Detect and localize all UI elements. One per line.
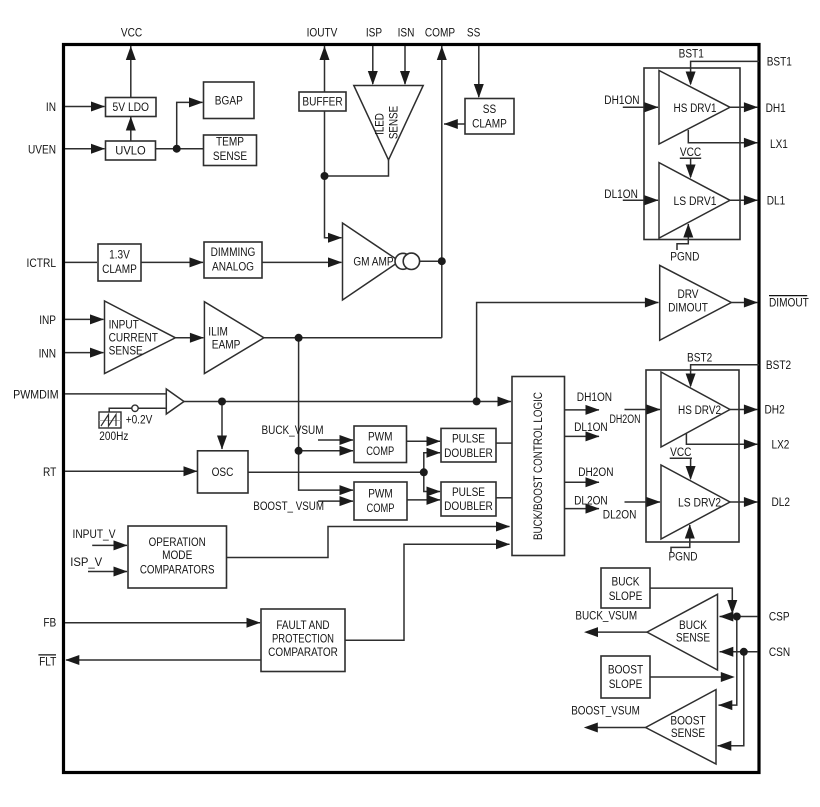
svg-text:CSP: CSP <box>769 612 790 624</box>
svg-text:DH1: DH1 <box>766 103 786 115</box>
svg-text:DIMMING: DIMMING <box>211 247 256 259</box>
svg-text:PWM: PWM <box>368 489 393 501</box>
svg-text:ANALOG: ANALOG <box>212 262 254 274</box>
svg-text:BUCK: BUCK <box>612 577 640 589</box>
svg-text:SS: SS <box>467 28 481 40</box>
svg-text:SENSE: SENSE <box>389 106 401 140</box>
svg-text:BOOST_VSUM: BOOST_VSUM <box>571 706 640 718</box>
svg-text:BOOST: BOOST <box>608 665 643 677</box>
svg-text:INPUT_V: INPUT_V <box>73 529 116 541</box>
svg-text:VCC: VCC <box>680 147 701 159</box>
svg-text:INPUT: INPUT <box>109 319 139 331</box>
svg-text:BST1: BST1 <box>767 57 792 69</box>
svg-text:DOUBLER: DOUBLER <box>444 448 493 460</box>
svg-text:ILED: ILED <box>375 113 387 135</box>
svg-text:RT: RT <box>43 467 56 479</box>
svg-text:SLOPE: SLOPE <box>609 591 643 603</box>
svg-text:LX1: LX1 <box>770 139 788 151</box>
svg-text:COMP: COMP <box>367 503 395 515</box>
svg-text:ILIM: ILIM <box>208 326 228 338</box>
svg-text:5V LDO: 5V LDO <box>113 102 150 114</box>
svg-text:CURRENT: CURRENT <box>109 332 158 344</box>
svg-text:DIMOUT: DIMOUT <box>668 303 708 315</box>
svg-text:BOOST: BOOST <box>670 716 705 728</box>
svg-text:BST1: BST1 <box>679 49 704 61</box>
svg-text:1.3V: 1.3V <box>109 250 130 262</box>
svg-text:DOUBLER: DOUBLER <box>444 501 493 513</box>
svg-text:DH1ON: DH1ON <box>577 392 612 404</box>
svg-text:BUCK_VSUM: BUCK_VSUM <box>262 425 324 437</box>
svg-text:SENSE: SENSE <box>213 151 247 163</box>
svg-text:DL1: DL1 <box>767 196 786 208</box>
svg-text:INP: INP <box>39 315 56 327</box>
svg-text:COMPARATORS: COMPARATORS <box>140 565 215 577</box>
svg-text:SLOPE: SLOPE <box>609 679 643 691</box>
svg-text:ISP: ISP <box>366 28 382 40</box>
svg-text:BUCK/BOOST CONTROL LOGIC: BUCK/BOOST CONTROL LOGIC <box>533 392 545 540</box>
svg-text:DL2ON: DL2ON <box>603 510 637 522</box>
svg-text:COMPARATOR: COMPARATOR <box>268 647 338 659</box>
svg-text:200Hz: 200Hz <box>99 431 128 443</box>
svg-text:DL1ON: DL1ON <box>604 189 638 201</box>
svg-text:SENSE: SENSE <box>676 633 710 645</box>
svg-text:SENSE: SENSE <box>109 346 143 358</box>
svg-text:PGND: PGND <box>670 251 699 263</box>
svg-text:DH2: DH2 <box>765 405 785 417</box>
svg-text:DH2ON: DH2ON <box>578 467 613 479</box>
svg-text:IOUTV: IOUTV <box>307 28 338 40</box>
svg-text:DL2: DL2 <box>772 497 791 509</box>
svg-text:GM AMP: GM AMP <box>353 257 394 269</box>
svg-text:PROTECTION: PROTECTION <box>272 634 334 646</box>
svg-text:DH2ON: DH2ON <box>610 414 641 426</box>
svg-text:DRV: DRV <box>677 289 698 301</box>
svg-text:PULSE: PULSE <box>452 487 485 499</box>
svg-text:LX2: LX2 <box>772 439 790 451</box>
svg-text:BOOST_ VSUM: BOOST_ VSUM <box>253 501 324 513</box>
svg-text:DIMOUT: DIMOUT <box>769 298 809 310</box>
svg-text:ISN: ISN <box>398 28 415 40</box>
svg-text:IN: IN <box>46 102 56 114</box>
svg-text:INN: INN <box>39 348 56 360</box>
svg-text:LS DRV2: LS DRV2 <box>678 497 721 509</box>
svg-text:BGAP: BGAP <box>215 96 243 108</box>
svg-text:OPERATION: OPERATION <box>149 537 206 549</box>
svg-text:OSC: OSC <box>212 467 234 479</box>
svg-text:PWM: PWM <box>368 432 393 444</box>
svg-text:PWMDIM: PWMDIM <box>13 390 59 402</box>
svg-text:BST2: BST2 <box>687 353 712 365</box>
svg-text:ISP_V: ISP_V <box>70 557 102 569</box>
svg-text:COMP: COMP <box>366 446 394 458</box>
svg-text:CLAMP: CLAMP <box>472 119 507 131</box>
svg-text:TEMP: TEMP <box>216 136 244 148</box>
svg-text:FB: FB <box>43 617 56 629</box>
svg-text:HS DRV1: HS DRV1 <box>674 103 717 115</box>
svg-text:BUCK: BUCK <box>679 620 707 632</box>
svg-text:BST2: BST2 <box>766 360 791 372</box>
svg-text:SENSE: SENSE <box>671 728 705 740</box>
svg-text:UVEN: UVEN <box>28 144 56 156</box>
svg-text:DL2ON: DL2ON <box>574 496 608 508</box>
svg-text:MODE: MODE <box>162 550 192 562</box>
svg-text:FLT: FLT <box>39 656 56 668</box>
svg-text:ICTRL: ICTRL <box>27 258 57 270</box>
svg-text:EAMP: EAMP <box>212 340 241 352</box>
svg-text:PULSE: PULSE <box>452 434 485 446</box>
svg-text:LS DRV1: LS DRV1 <box>674 196 717 208</box>
svg-text:SS: SS <box>483 104 497 116</box>
svg-text:+0.2V: +0.2V <box>126 414 153 426</box>
svg-text:PGND: PGND <box>668 552 697 564</box>
svg-text:HS DRV2: HS DRV2 <box>678 405 721 417</box>
svg-text:COMP: COMP <box>425 28 455 40</box>
svg-text:BUFFER: BUFFER <box>302 97 342 109</box>
svg-text:CLAMP: CLAMP <box>102 264 137 276</box>
svg-text:UVLO: UVLO <box>115 146 146 158</box>
svg-text:CSN: CSN <box>769 647 790 659</box>
svg-text:DH1ON: DH1ON <box>604 95 639 107</box>
svg-text:VCC: VCC <box>121 28 142 40</box>
svg-text:VCC: VCC <box>670 447 691 459</box>
svg-text:BUCK_VSUM: BUCK_VSUM <box>575 610 637 622</box>
svg-text:FAULT AND: FAULT AND <box>276 620 329 632</box>
svg-text:DL1ON: DL1ON <box>574 422 608 434</box>
